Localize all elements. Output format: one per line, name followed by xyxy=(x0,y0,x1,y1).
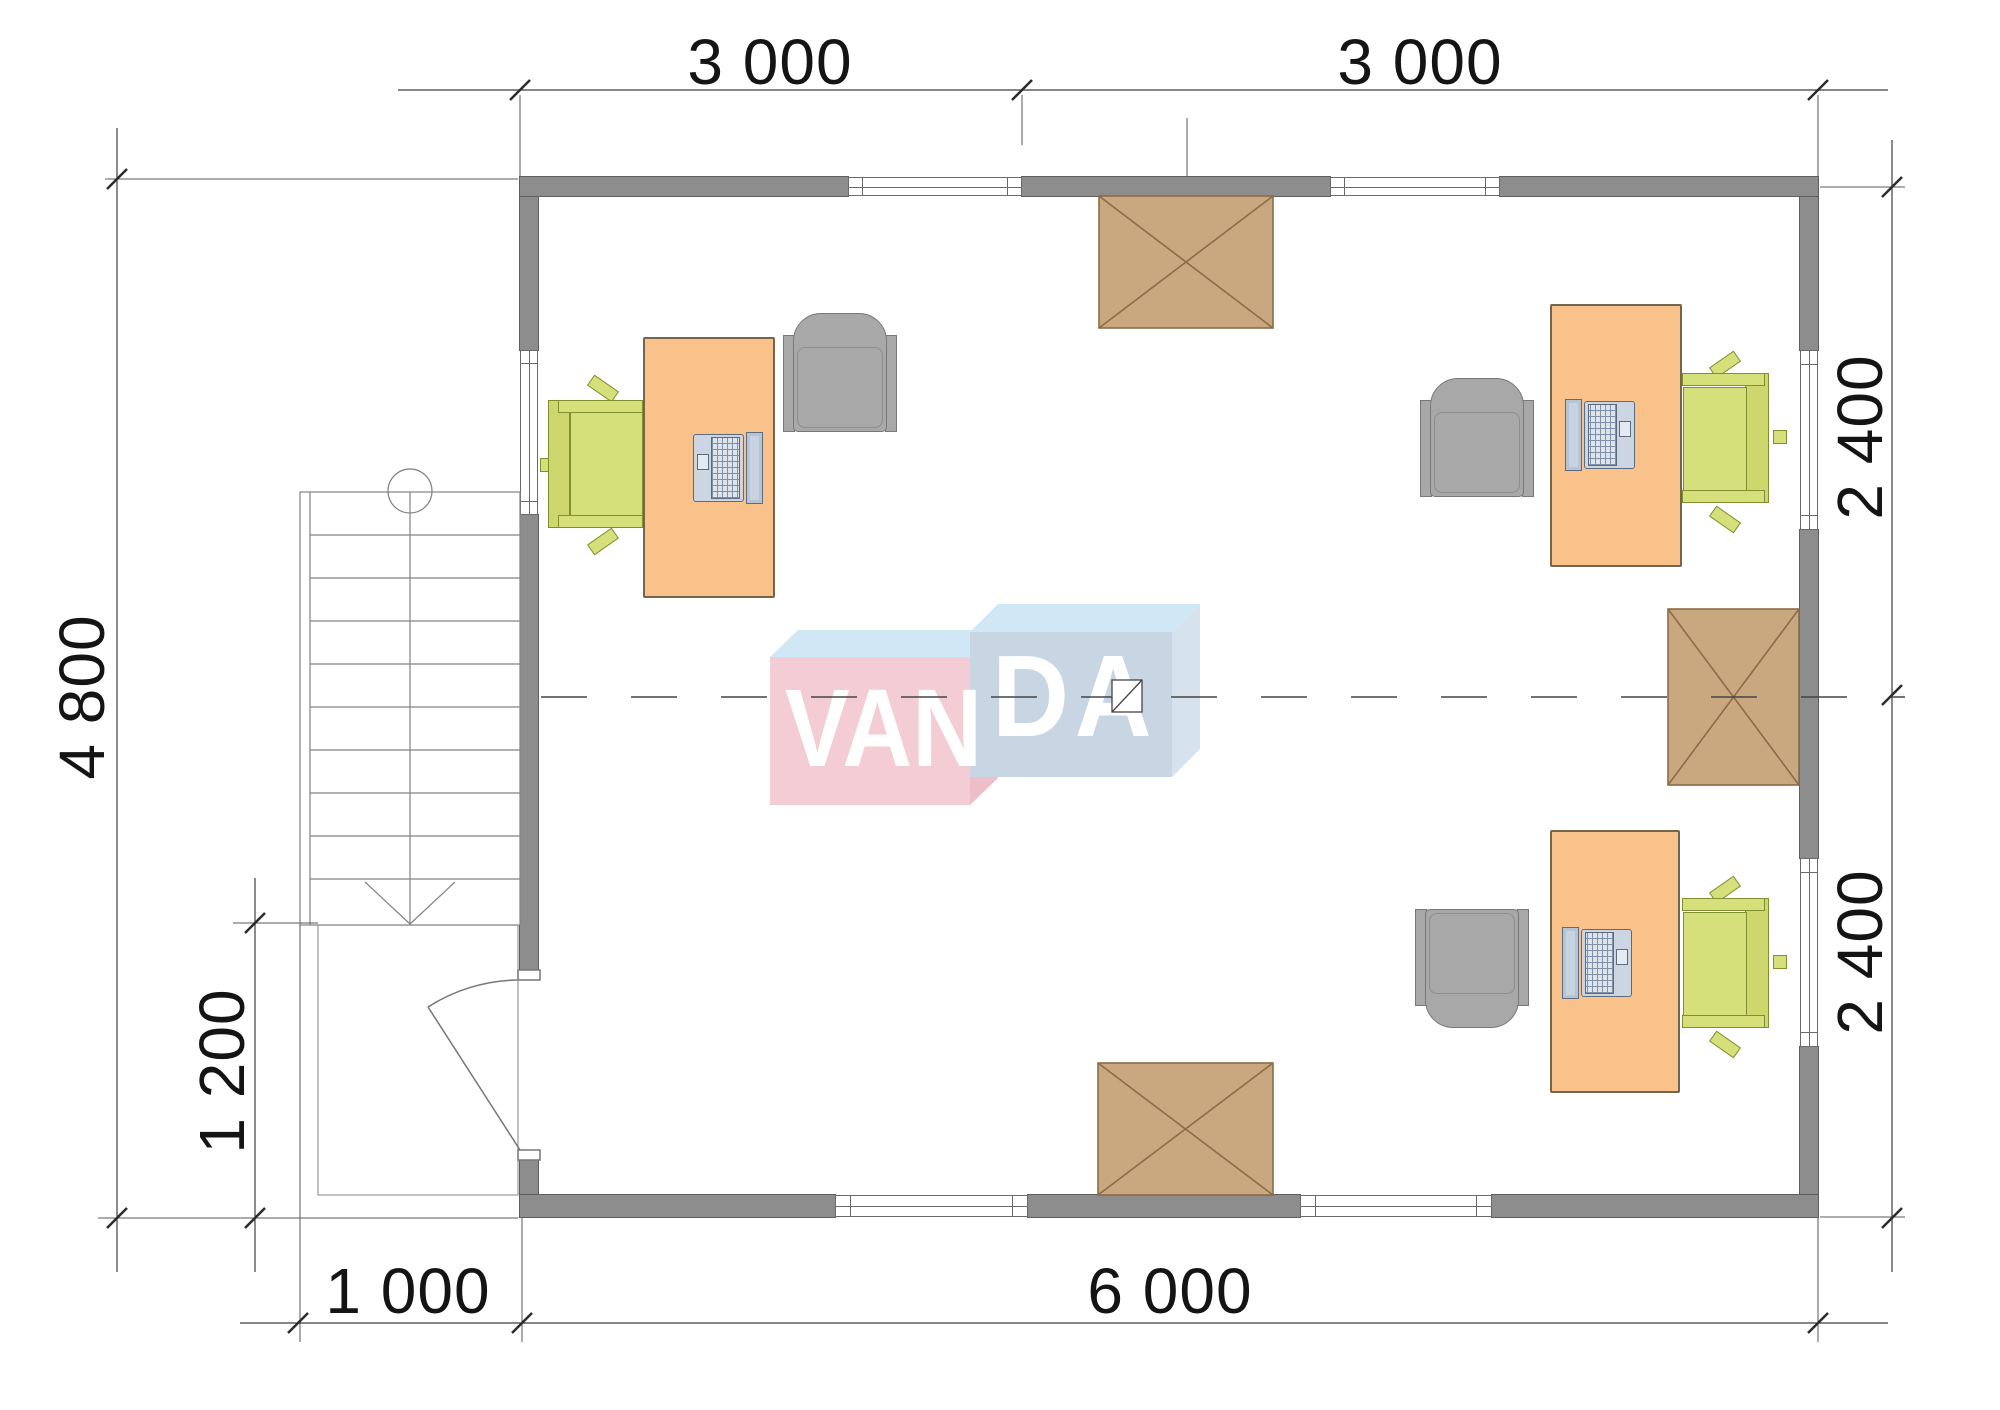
plan-linework xyxy=(0,0,2000,1410)
staircase xyxy=(300,469,520,925)
dim-label-left-height: 4 800 xyxy=(50,587,114,807)
dim-label-top-left: 3 000 xyxy=(660,30,880,94)
dim-label-bottom-width: 6 000 xyxy=(1060,1259,1280,1323)
centerline-marker-icon xyxy=(1112,680,1142,712)
dim-label-porch-width: 1 000 xyxy=(298,1259,518,1323)
dim-label-porch-height: 1 200 xyxy=(190,961,254,1181)
roof-hatch-1 xyxy=(1099,196,1273,328)
porch-outline xyxy=(318,925,518,1195)
floor-plan: VAN DA xyxy=(0,0,2000,1410)
roof-hatch-3 xyxy=(1098,1063,1273,1195)
dim-label-top-right: 3 000 xyxy=(1310,30,1530,94)
dim-label-right-upper: 2 400 xyxy=(1828,327,1892,547)
dim-label-right-lower: 2 400 xyxy=(1828,842,1892,1062)
